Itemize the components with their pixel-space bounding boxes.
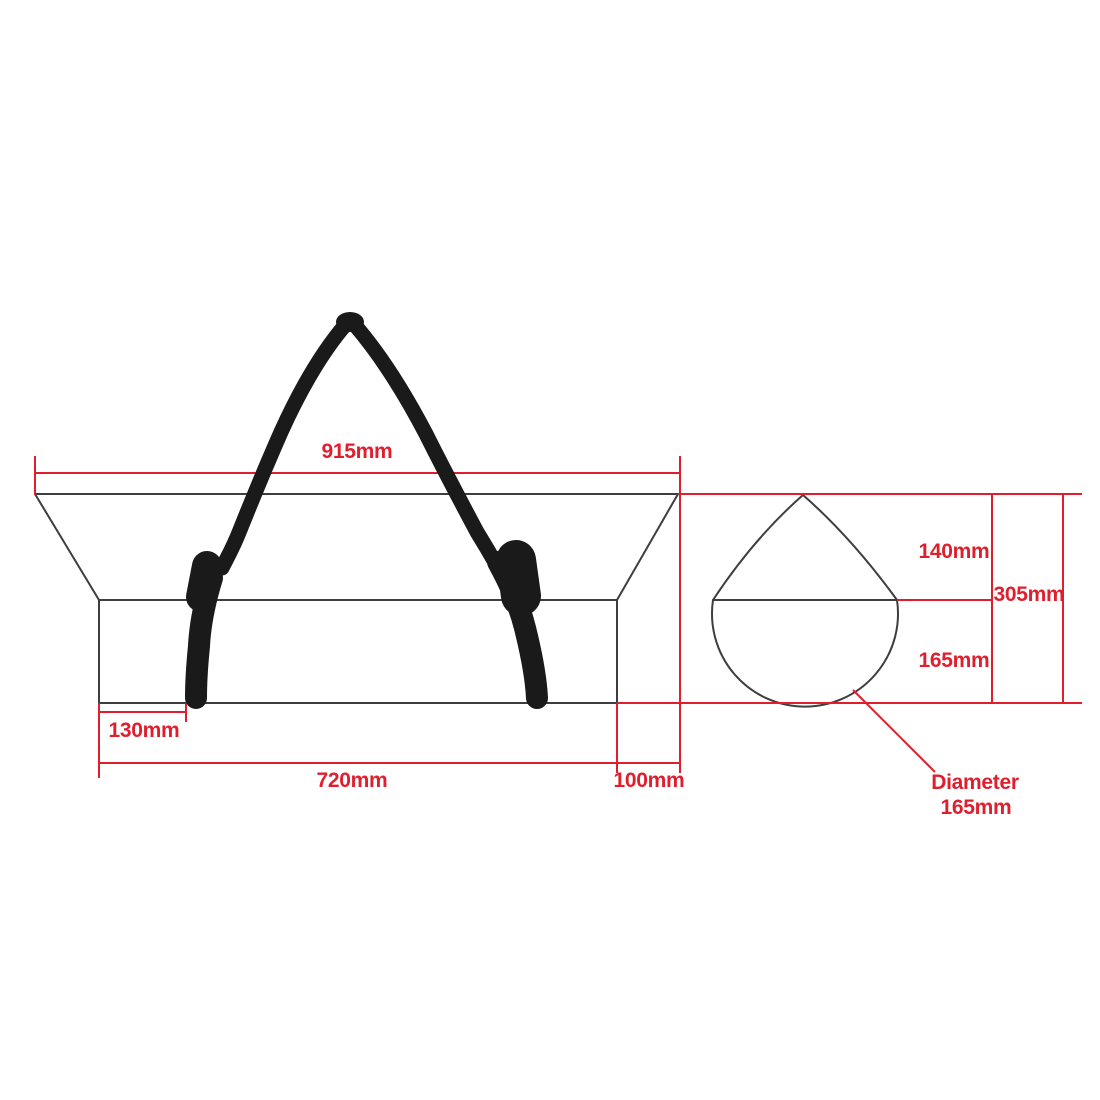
side-view bbox=[35, 494, 678, 703]
label-body-length: 720mm bbox=[317, 769, 388, 792]
label-overall-height: 305mm bbox=[994, 583, 1065, 606]
strap-left-lower bbox=[196, 578, 212, 698]
section-bottom-arc bbox=[712, 600, 898, 707]
section-cone-left-edge bbox=[713, 495, 803, 600]
label-strap-inset: 130mm bbox=[109, 719, 180, 742]
label-lower-height: 165mm bbox=[919, 649, 990, 672]
dimension-drawing-page: 915mm 130mm 720mm 100mm 140mm 305mm 165m… bbox=[0, 0, 1100, 1100]
label-cone-height: 140mm bbox=[919, 540, 990, 563]
side-view-funnel-outline bbox=[35, 494, 678, 600]
section-cone-right-edge bbox=[803, 495, 897, 600]
label-diameter-word: Diameter bbox=[931, 771, 1019, 794]
cross-section-view bbox=[712, 495, 898, 707]
label-diameter-value: 165mm bbox=[941, 796, 1012, 819]
carry-straps bbox=[196, 312, 537, 698]
dimension-drawing: 915mm 130mm 720mm 100mm 140mm 305mm 165m… bbox=[0, 0, 1100, 1100]
label-end-taper: 100mm bbox=[614, 769, 685, 792]
label-top-length: 915mm bbox=[322, 440, 393, 463]
